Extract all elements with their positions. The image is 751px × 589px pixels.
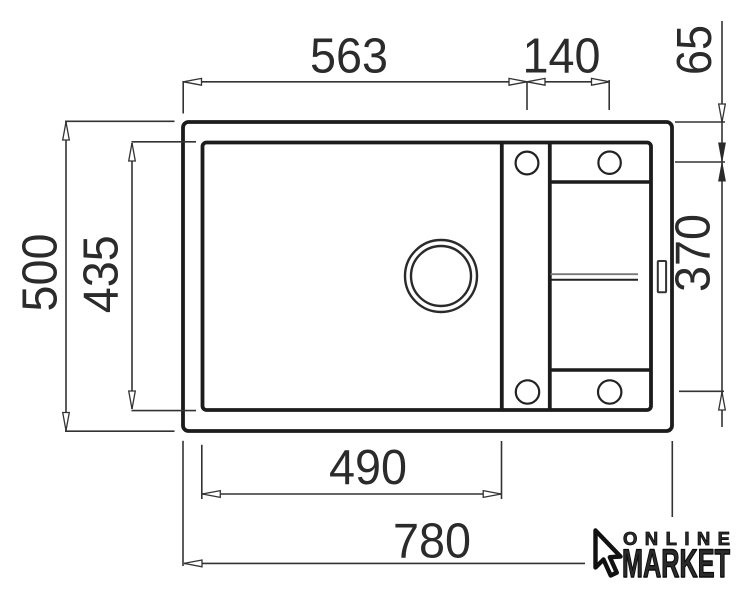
svg-text:500: 500	[14, 234, 68, 312]
svg-text:370: 370	[666, 214, 720, 292]
svg-text:435: 435	[75, 235, 129, 313]
svg-text:780: 780	[393, 514, 471, 568]
svg-text:563: 563	[310, 30, 388, 84]
svg-text:MARKET: MARKET	[622, 542, 730, 586]
svg-text:140: 140	[523, 30, 601, 84]
svg-text:490: 490	[329, 441, 407, 495]
svg-text:65: 65	[668, 25, 722, 75]
